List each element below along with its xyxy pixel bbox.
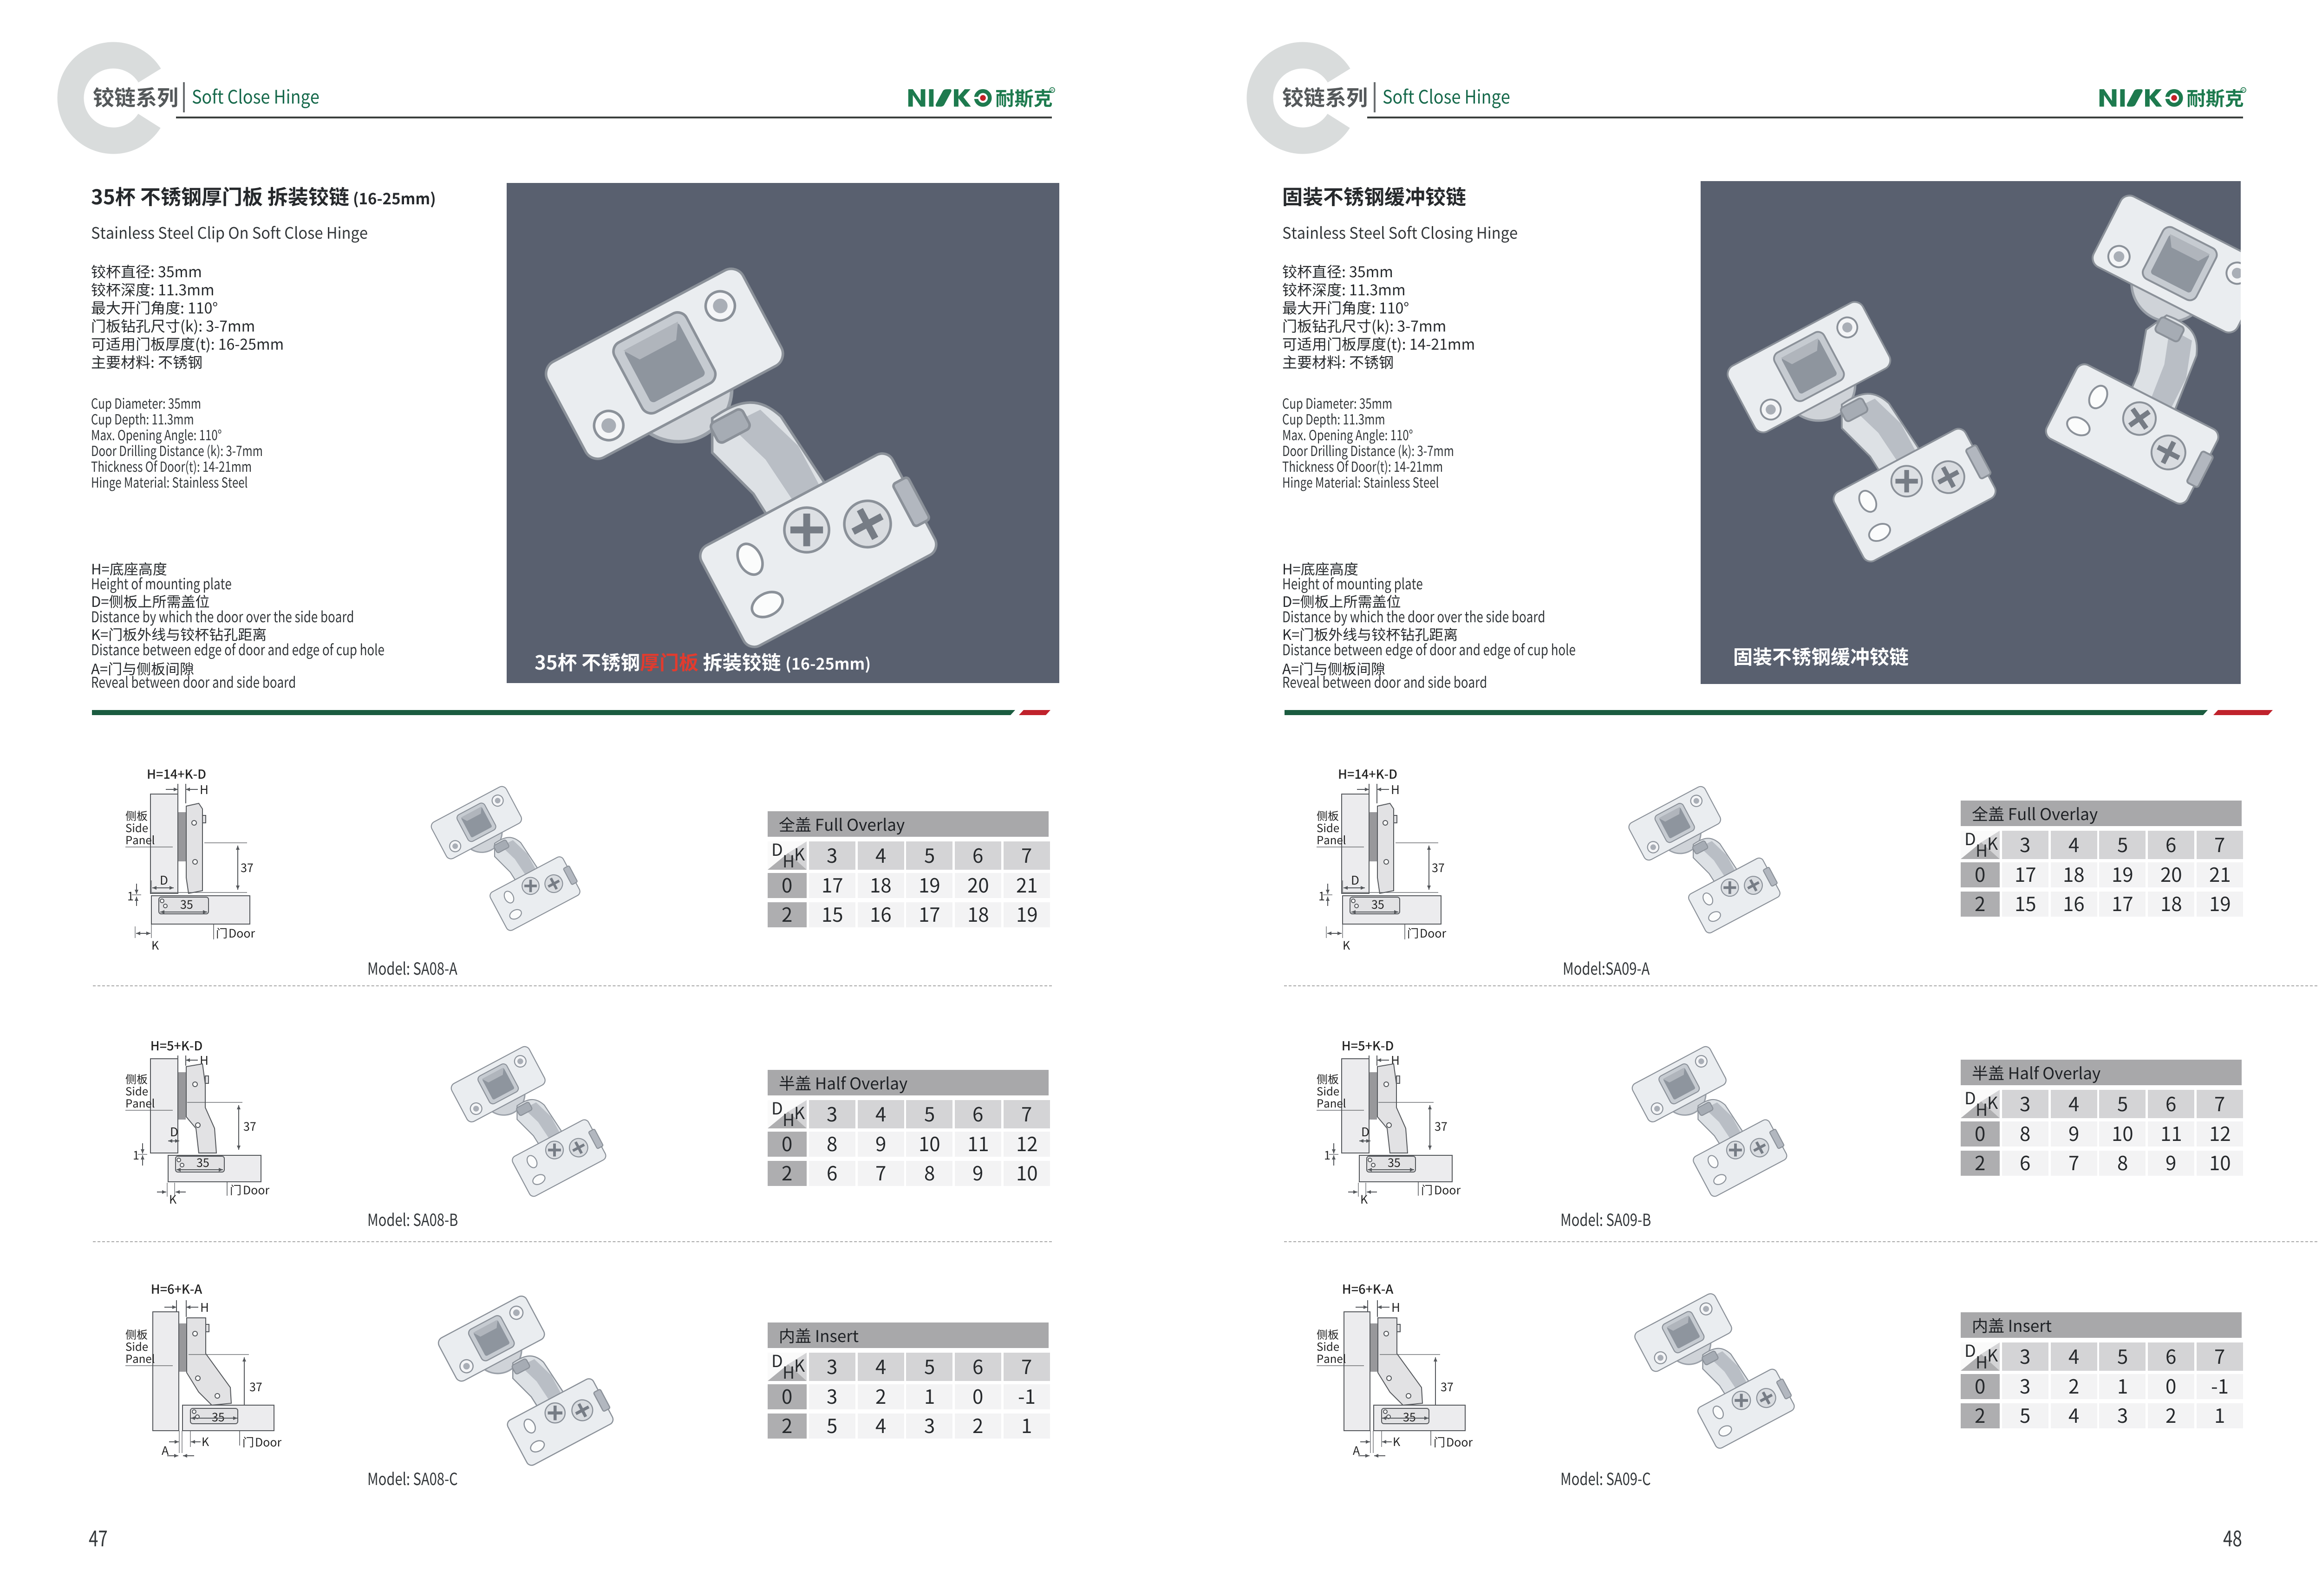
svg-text:R: R <box>2242 88 2245 92</box>
svg-text:R: R <box>1051 88 1054 92</box>
